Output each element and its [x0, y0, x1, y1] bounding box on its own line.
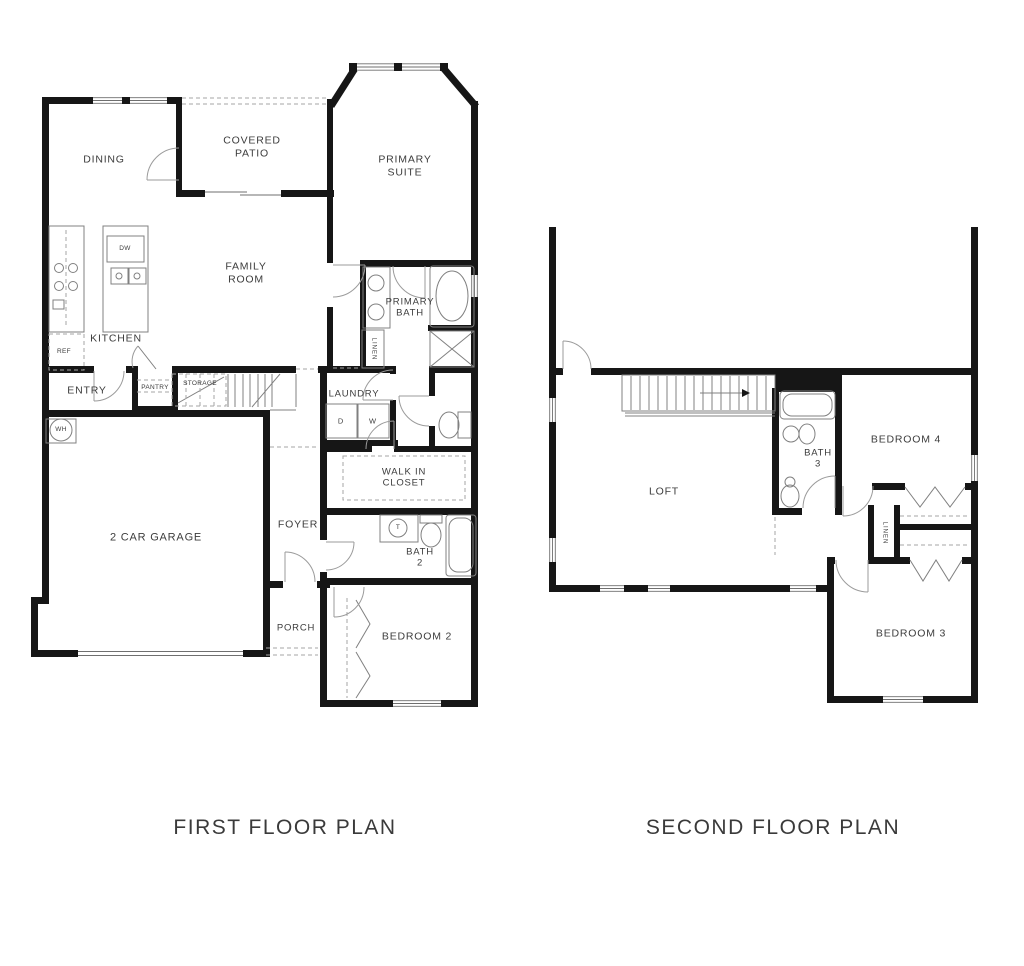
- room-label-laundry: LAUNDRY: [329, 388, 380, 399]
- room-label-primary-bath: PRIMARY BATH: [383, 297, 437, 320]
- first-floor-dashed-lines: [49, 98, 465, 698]
- bath2-sink-tag: T: [396, 524, 400, 532]
- room-label-walk-in-closet: WALK IN CLOSET: [371, 467, 437, 490]
- room-label-primary-suite: PRIMARY SUITE: [377, 153, 433, 178]
- room-label-pantry: PANTRY: [141, 384, 169, 392]
- dishwasher-label: DW: [119, 245, 130, 253]
- washer-label: W: [369, 417, 377, 426]
- room-label-loft: LOFT: [649, 486, 679, 499]
- closet-label-linen-second: LINEN: [880, 522, 887, 545]
- room-label-bath-3: BATH 3: [802, 448, 834, 471]
- room-label-kitchen: KITCHEN: [90, 333, 142, 346]
- second-floor-plan-title: SECOND FLOOR PLAN: [646, 816, 900, 840]
- room-label-entry: ENTRY: [67, 385, 106, 398]
- first-floor-bay-angled-walls: [333, 70, 474, 104]
- room-label-dining: DINING: [83, 154, 125, 167]
- room-label-covered-patio: COVERED PATIO: [221, 134, 283, 159]
- room-label-bedroom-4: BEDROOM 4: [871, 434, 941, 447]
- room-label-bath-2: BATH 2: [404, 547, 436, 570]
- room-label-bedroom-2: BEDROOM 2: [382, 631, 452, 644]
- room-label-family-room: FAMILY ROOM: [223, 260, 269, 285]
- room-label-storage: STORAGE: [183, 380, 217, 388]
- first-floor-doors: [94, 148, 429, 617]
- room-label-foyer: FOYER: [278, 519, 318, 532]
- first-floor-plan-title: FIRST FLOOR PLAN: [173, 816, 396, 840]
- room-label-porch: PORCH: [277, 622, 315, 633]
- water-heater-label: WH: [55, 426, 66, 434]
- room-label-garage: 2 CAR GARAGE: [110, 531, 202, 544]
- closet-label-linen-first: LINEN: [369, 338, 376, 361]
- second-floor-windows: [549, 368, 978, 703]
- refrigerator-label: REF: [57, 348, 71, 356]
- dryer-label: D: [338, 417, 344, 426]
- second-floor-fixtures: [622, 375, 965, 581]
- room-label-bedroom-3: BEDROOM 3: [876, 628, 946, 641]
- floor-plan-page: DINING COVERED PATIO PRIMARY SUITE FAMIL…: [0, 0, 1024, 966]
